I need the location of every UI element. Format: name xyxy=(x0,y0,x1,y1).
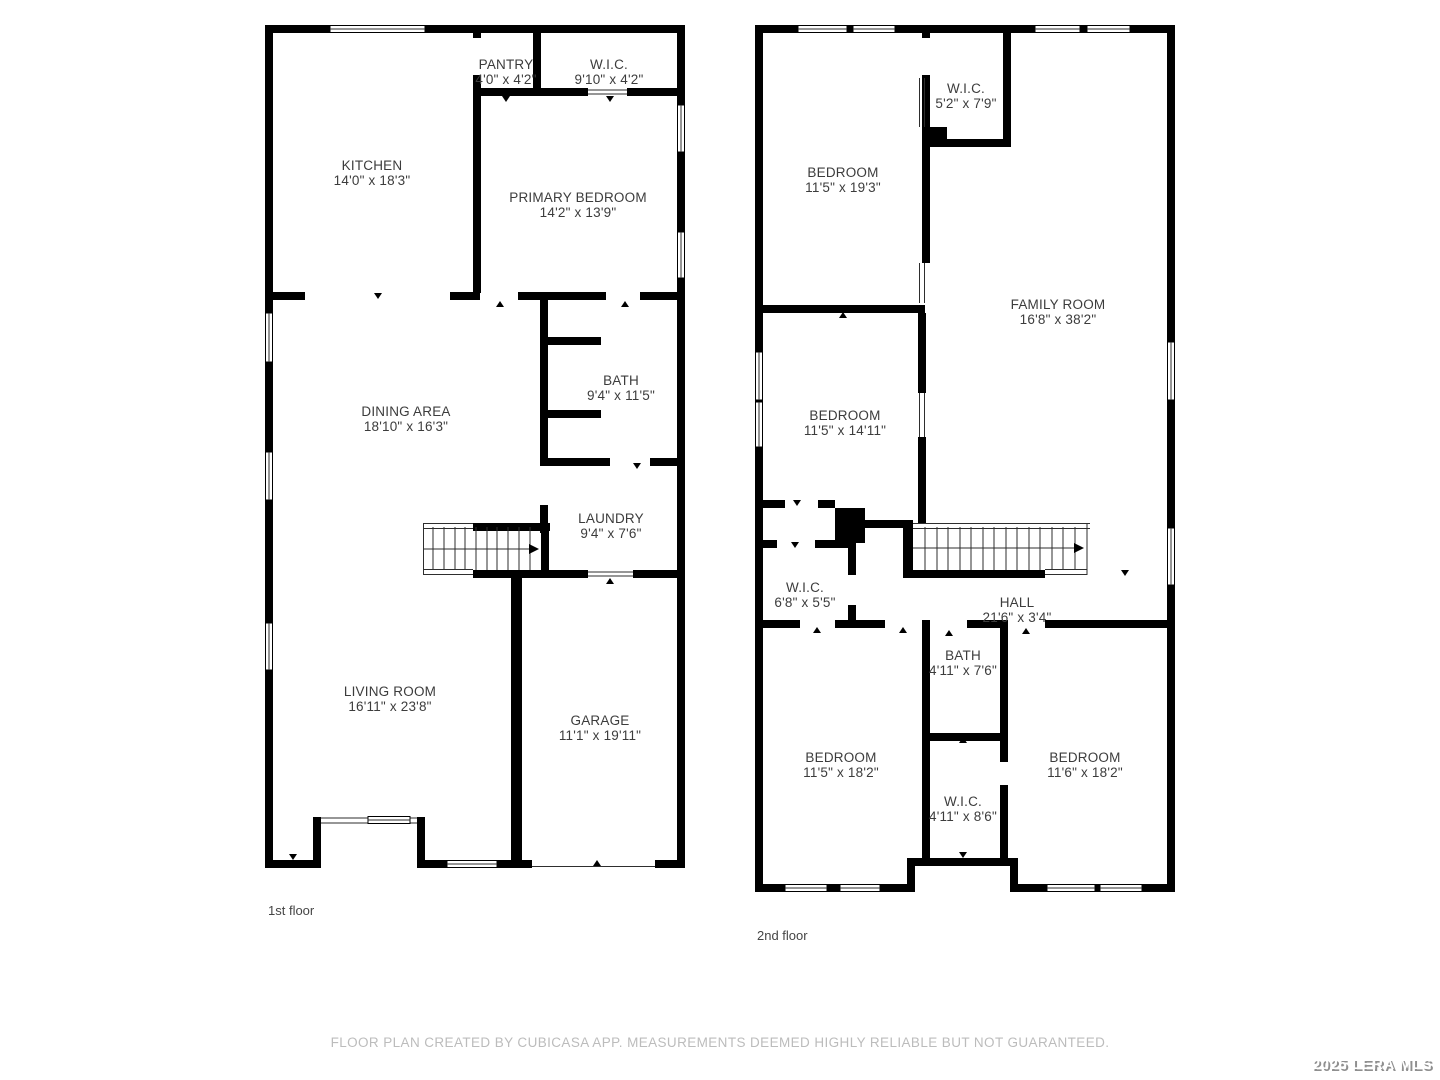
room-dims: 11'5" x 14'11" xyxy=(804,423,886,438)
room-dims: 16'8" x 38'2" xyxy=(1011,312,1106,327)
room-name: LAUNDRY xyxy=(578,511,644,526)
room-label-primary-bedroom: PRIMARY BEDROOM 14'2" x 13'9" xyxy=(509,190,647,220)
room-name: W.I.C. xyxy=(929,794,997,809)
room-dims: 9'4" x 7'6" xyxy=(578,526,644,541)
first-floor-caption: 1st floor xyxy=(268,903,314,918)
room-name: BEDROOM xyxy=(804,408,886,423)
room-name: HALL xyxy=(983,595,1052,610)
room-dims: 11'6" x 18'2" xyxy=(1047,765,1123,780)
room-label-pantry: PANTRY 4'0" x 4'2" xyxy=(475,57,536,87)
room-dims: 11'1" x 19'11" xyxy=(559,728,641,743)
room-label-bath-1f: BATH 9'4" x 11'5" xyxy=(587,373,655,403)
room-dims: 4'0" x 4'2" xyxy=(475,72,536,87)
room-label-bath-2f: BATH 4'11" x 7'6" xyxy=(929,648,997,678)
room-name: PRIMARY BEDROOM xyxy=(509,190,647,205)
room-name: W.I.C. xyxy=(575,57,644,72)
room-label-bedroom-bottom-left: BEDROOM 11'5" x 18'2" xyxy=(803,750,879,780)
room-label-wic-top: W.I.C. 5'2" x 7'9" xyxy=(935,81,996,111)
room-dims: 5'2" x 7'9" xyxy=(935,96,996,111)
room-dims: 4'11" x 7'6" xyxy=(929,663,997,678)
room-dims: 21'6" x 3'4" xyxy=(983,610,1052,625)
footer-disclaimer: FLOOR PLAN CREATED BY CUBICASA APP. MEAS… xyxy=(0,1035,1440,1050)
room-name: W.I.C. xyxy=(774,580,835,595)
stairs-direction-arrow xyxy=(1074,543,1084,553)
room-dims: 9'4" x 11'5" xyxy=(587,388,655,403)
room-name: KITCHEN xyxy=(334,158,411,173)
room-dims: 14'0" x 18'3" xyxy=(334,173,411,188)
room-label-bedroom-top: BEDROOM 11'5" x 19'3" xyxy=(805,165,881,195)
room-name: PANTRY xyxy=(475,57,536,72)
room-name: FAMILY ROOM xyxy=(1011,297,1106,312)
room-name: GARAGE xyxy=(559,713,641,728)
room-name: BEDROOM xyxy=(803,750,879,765)
room-name: BATH xyxy=(587,373,655,388)
floor-plan-page: KITCHEN 14'0" x 18'3" PANTRY 4'0" x 4'2"… xyxy=(0,0,1440,1080)
room-label-laundry: LAUNDRY 9'4" x 7'6" xyxy=(578,511,644,541)
stairs-direction-arrow xyxy=(529,544,539,554)
room-dims: 16'11" x 23'8" xyxy=(344,699,436,714)
room-label-garage: GARAGE 11'1" x 19'11" xyxy=(559,713,641,743)
room-label-family-room: FAMILY ROOM 16'8" x 38'2" xyxy=(1011,297,1106,327)
room-dims: 6'8" x 5'5" xyxy=(774,595,835,610)
second-floor-caption: 2nd floor xyxy=(757,928,808,943)
second-floor-staircase xyxy=(913,523,1090,575)
room-dims: 4'11" x 8'6" xyxy=(929,809,997,824)
room-label-living-room: LIVING ROOM 16'11" x 23'8" xyxy=(344,684,436,714)
floor-plan-drawing xyxy=(0,0,1440,1080)
room-dims: 14'2" x 13'9" xyxy=(509,205,647,220)
room-dims: 11'5" x 18'2" xyxy=(803,765,879,780)
mls-watermark: 2025 LERA MLS xyxy=(1312,1056,1432,1073)
room-dims: 9'10" x 4'2" xyxy=(575,72,644,87)
room-label-kitchen: KITCHEN 14'0" x 18'3" xyxy=(334,158,411,188)
room-label-bedroom-mid: BEDROOM 11'5" x 14'11" xyxy=(804,408,886,438)
room-dims: 11'5" x 19'3" xyxy=(805,180,881,195)
room-label-wic-1f: W.I.C. 9'10" x 4'2" xyxy=(575,57,644,87)
room-name: BEDROOM xyxy=(805,165,881,180)
room-name: LIVING ROOM xyxy=(344,684,436,699)
room-name: W.I.C. xyxy=(935,81,996,96)
room-label-wic-hall: W.I.C. 6'8" x 5'5" xyxy=(774,580,835,610)
room-label-hall: HALL 21'6" x 3'4" xyxy=(983,595,1052,625)
room-label-bedroom-bottom-right: BEDROOM 11'6" x 18'2" xyxy=(1047,750,1123,780)
room-dims: 18'10" x 16'3" xyxy=(361,419,450,434)
room-name: DINING AREA xyxy=(361,404,450,419)
room-name: BEDROOM xyxy=(1047,750,1123,765)
room-label-dining-area: DINING AREA 18'10" x 16'3" xyxy=(361,404,450,434)
room-label-wic-bottom: W.I.C. 4'11" x 8'6" xyxy=(929,794,997,824)
room-name: BATH xyxy=(929,648,997,663)
